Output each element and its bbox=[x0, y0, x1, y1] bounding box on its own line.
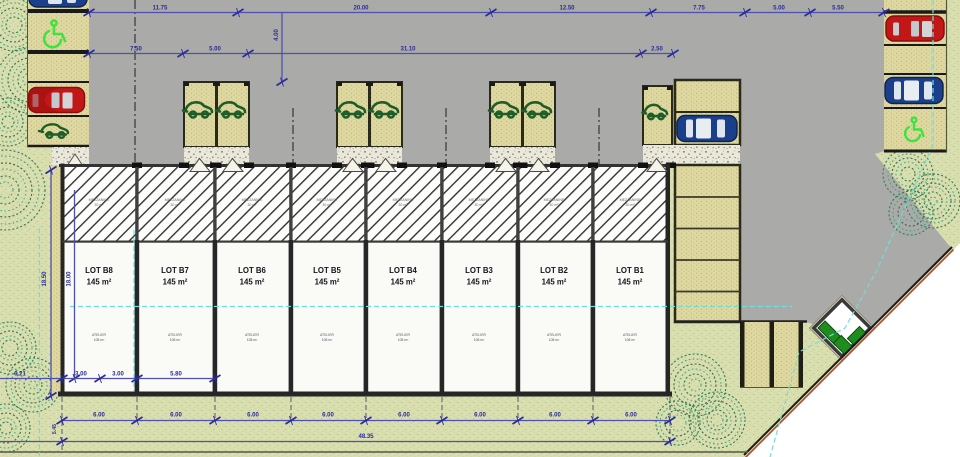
svg-text:108 m²: 108 m² bbox=[474, 338, 485, 342]
svg-text:145 m²: 145 m² bbox=[391, 278, 416, 287]
svg-text:30 m²: 30 m² bbox=[322, 203, 332, 207]
svg-text:LOT B3: LOT B3 bbox=[465, 266, 493, 275]
svg-text:108 m²: 108 m² bbox=[322, 338, 333, 342]
svg-text:6.00: 6.00 bbox=[322, 413, 334, 419]
svg-text:5.50: 5.50 bbox=[832, 6, 844, 12]
svg-text:ATELIER: ATELIER bbox=[245, 333, 259, 337]
svg-text:ATELIER: ATELIER bbox=[320, 333, 334, 337]
svg-text:MEZZANINE: MEZZANINE bbox=[89, 198, 110, 202]
svg-text:145 m²: 145 m² bbox=[315, 278, 340, 287]
svg-text:MEZZANINE: MEZZANINE bbox=[165, 198, 186, 202]
svg-text:LOT B7: LOT B7 bbox=[161, 266, 189, 275]
svg-text:MEZZANINE: MEZZANINE bbox=[242, 198, 263, 202]
svg-text:108 m²: 108 m² bbox=[94, 338, 105, 342]
svg-text:145 m²: 145 m² bbox=[542, 278, 567, 287]
svg-text:20.00: 20.00 bbox=[353, 6, 369, 12]
svg-text:5.80: 5.80 bbox=[170, 372, 182, 378]
svg-text:145 m²: 145 m² bbox=[240, 278, 265, 287]
svg-text:108 m²: 108 m² bbox=[170, 338, 181, 342]
svg-text:MEZZANINE: MEZZANINE bbox=[393, 198, 414, 202]
svg-text:3.00: 3.00 bbox=[75, 372, 87, 378]
svg-text:108 m²: 108 m² bbox=[625, 338, 636, 342]
svg-text:30 m²: 30 m² bbox=[247, 203, 257, 207]
svg-text:ATELIER: ATELIER bbox=[623, 333, 637, 337]
svg-text:108 m²: 108 m² bbox=[247, 338, 258, 342]
svg-text:6.00: 6.00 bbox=[93, 413, 105, 419]
svg-text:6.00: 6.00 bbox=[170, 413, 182, 419]
svg-text:30 m²: 30 m² bbox=[625, 203, 635, 207]
svg-text:LOT B8: LOT B8 bbox=[85, 266, 113, 275]
svg-text:ATELIER: ATELIER bbox=[547, 333, 561, 337]
svg-text:MEZZANINE: MEZZANINE bbox=[544, 198, 565, 202]
svg-text:31.10: 31.10 bbox=[400, 47, 416, 53]
svg-text:30 m²: 30 m² bbox=[474, 203, 484, 207]
svg-text:MEZZANINE: MEZZANINE bbox=[620, 198, 641, 202]
svg-text:11.75: 11.75 bbox=[153, 6, 168, 12]
svg-text:3.00: 3.00 bbox=[112, 372, 124, 378]
svg-text:5.00: 5.00 bbox=[773, 6, 785, 12]
svg-text:MEZZANINE: MEZZANINE bbox=[317, 198, 338, 202]
svg-text:108 m²: 108 m² bbox=[398, 338, 409, 342]
svg-text:18.00: 18.00 bbox=[67, 271, 73, 287]
svg-text:12.50: 12.50 bbox=[559, 6, 575, 12]
svg-text:6.21: 6.21 bbox=[14, 372, 26, 378]
svg-text:ATELIER: ATELIER bbox=[396, 333, 410, 337]
svg-text:ATELIER: ATELIER bbox=[168, 333, 182, 337]
svg-text:LOT B2: LOT B2 bbox=[540, 266, 568, 275]
svg-text:LOT B1: LOT B1 bbox=[616, 266, 644, 275]
svg-text:5.00: 5.00 bbox=[209, 47, 221, 53]
svg-text:6.00: 6.00 bbox=[549, 413, 561, 419]
svg-text:108 m²: 108 m² bbox=[549, 338, 560, 342]
svg-text:145 m²: 145 m² bbox=[618, 278, 643, 287]
svg-text:6.00: 6.00 bbox=[398, 413, 410, 419]
svg-text:MEZZANINE: MEZZANINE bbox=[469, 198, 490, 202]
svg-text:18.50: 18.50 bbox=[42, 271, 48, 287]
svg-text:4.00: 4.00 bbox=[274, 29, 280, 41]
svg-text:ATELIER: ATELIER bbox=[472, 333, 486, 337]
svg-text:6.00: 6.00 bbox=[625, 413, 637, 419]
svg-text:6.00: 6.00 bbox=[247, 413, 259, 419]
svg-text:145 m²: 145 m² bbox=[163, 278, 188, 287]
svg-text:30 m²: 30 m² bbox=[170, 203, 180, 207]
svg-text:30 m²: 30 m² bbox=[549, 203, 559, 207]
svg-text:6.00: 6.00 bbox=[474, 413, 486, 419]
svg-text:5.45: 5.45 bbox=[52, 424, 58, 434]
svg-text:145 m²: 145 m² bbox=[87, 278, 112, 287]
svg-text:LOT B4: LOT B4 bbox=[389, 266, 417, 275]
svg-text:145 m²: 145 m² bbox=[467, 278, 492, 287]
svg-text:30 m²: 30 m² bbox=[94, 203, 104, 207]
svg-text:48.35: 48.35 bbox=[358, 434, 374, 440]
svg-text:LOT B6: LOT B6 bbox=[238, 266, 266, 275]
svg-text:7.75: 7.75 bbox=[693, 6, 705, 12]
svg-text:2.50: 2.50 bbox=[651, 47, 663, 53]
svg-text:ATELIER: ATELIER bbox=[92, 333, 106, 337]
svg-text:LOT B5: LOT B5 bbox=[313, 266, 341, 275]
svg-text:7.50: 7.50 bbox=[130, 47, 142, 53]
svg-text:30 m²: 30 m² bbox=[398, 203, 408, 207]
